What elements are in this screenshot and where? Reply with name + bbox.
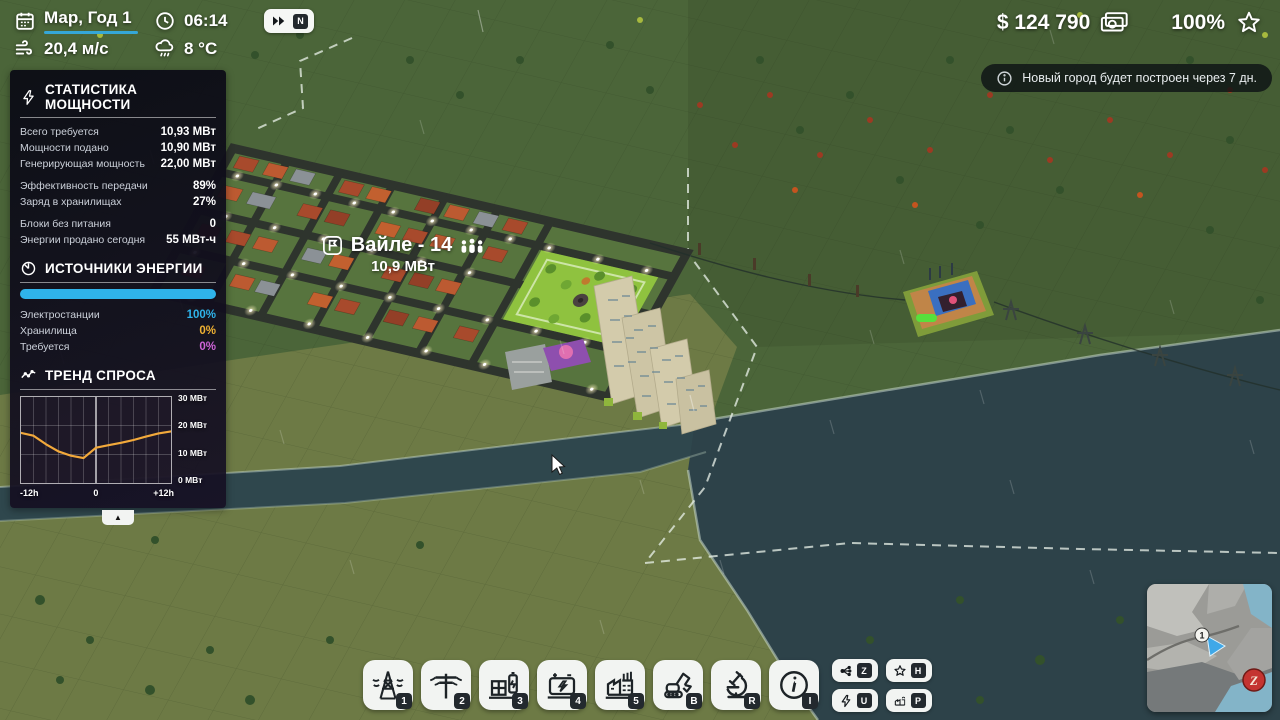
population-icon bbox=[459, 237, 485, 255]
demand-trend-chart: 30 МВт 20 МВт 10 МВт 0 МВт bbox=[20, 396, 216, 485]
hotkey-badge: 5 bbox=[628, 693, 644, 709]
hotkey-badge: B bbox=[686, 693, 702, 709]
lightning-icon bbox=[20, 89, 37, 106]
tool-research[interactable]: R bbox=[711, 660, 761, 710]
city-marker-number: 1 bbox=[1199, 631, 1204, 641]
tool-battery-storage[interactable]: 4 bbox=[537, 660, 587, 710]
y-axis-labels: 30 МВт 20 МВт 10 МВт 0 МВт bbox=[172, 393, 207, 485]
hotkey-badge: Z bbox=[857, 663, 872, 678]
game-viewport: Мар, Год 1 06:14 N 20,4 м/с bbox=[0, 0, 1280, 720]
overlay-hotkeys: Z H U P bbox=[832, 659, 932, 712]
hotkey-badge: R bbox=[744, 693, 760, 709]
overlay-production-button[interactable]: P bbox=[886, 689, 932, 712]
tool-demolish[interactable]: B bbox=[653, 660, 703, 710]
game-date: Мар, Год 1 bbox=[44, 8, 138, 28]
money-amount: $ 124 790 bbox=[997, 11, 1090, 35]
energy-sources-header: ИСТОЧНИКИ ЭНЕРГИИ bbox=[20, 256, 216, 282]
energy-sources-bar bbox=[20, 289, 216, 299]
wind-icon bbox=[14, 38, 36, 60]
city-name: Вайле - 14 bbox=[351, 234, 452, 257]
hotkey-badge: 1 bbox=[396, 693, 412, 709]
divider bbox=[20, 389, 216, 390]
tool-transmission-tower[interactable]: 1 bbox=[363, 660, 413, 710]
source-row: Электростанции 100% bbox=[20, 307, 216, 323]
hotkey-badge: U bbox=[857, 693, 872, 708]
temperature: 8 °C bbox=[184, 39, 217, 59]
stat-row: Генерирующая мощность22,00 МВт bbox=[20, 156, 216, 172]
minimap-terrain: 1 Z bbox=[1147, 584, 1272, 712]
overlay-approval-button[interactable]: H bbox=[886, 659, 932, 682]
divider bbox=[20, 117, 216, 118]
date-underline bbox=[44, 31, 138, 34]
tool-substation[interactable]: 3 bbox=[479, 660, 529, 710]
speed-mode-badge: N bbox=[293, 14, 308, 29]
tool-info[interactable]: I bbox=[769, 660, 819, 710]
overlay-power-button[interactable]: U bbox=[832, 689, 878, 712]
build-toolbar: 1 2 3 4 bbox=[363, 660, 819, 710]
clock-icon bbox=[154, 10, 176, 32]
hotkey-badge: H bbox=[911, 663, 926, 678]
stat-row: Мощности подано10,90 МВт bbox=[20, 140, 216, 156]
stat-row: Эффективность передачи89% bbox=[20, 178, 216, 194]
city-label[interactable]: Вайле - 14 10,9 МВт bbox=[318, 234, 488, 275]
logo-letter: Z bbox=[1249, 673, 1258, 688]
source-row: Требуется 0% bbox=[20, 339, 216, 355]
power-stats-header: СТАТИСТИКА МОЩНОСТИ bbox=[20, 78, 216, 117]
divider bbox=[20, 282, 216, 283]
hotkey-badge: 4 bbox=[570, 693, 586, 709]
rain-cloud-icon bbox=[154, 38, 176, 60]
power-statistics-panel: СТАТИСТИКА МОЩНОСТИ Всего требуется10,93… bbox=[10, 70, 226, 508]
stat-row: Блоки без питания0 bbox=[20, 216, 216, 232]
trend-plot-area bbox=[20, 396, 172, 484]
demand-trend-header: ТРЕНД СПРОСА bbox=[20, 363, 216, 389]
game-time: 06:14 bbox=[184, 11, 227, 31]
info-icon bbox=[996, 70, 1013, 87]
stat-row: Заряд в хранилищах27% bbox=[20, 194, 216, 210]
gauge-icon bbox=[20, 260, 37, 277]
game-speed-control[interactable]: N bbox=[264, 9, 314, 33]
tool-power-plant[interactable]: 5 bbox=[595, 660, 645, 710]
top-right-hud: $ 124 790 100% bbox=[997, 10, 1264, 36]
notification-text: Новый город будет построен через 7 дн. bbox=[1022, 71, 1257, 85]
city-power-demand: 10,9 МВт bbox=[318, 258, 488, 275]
network-icon bbox=[839, 664, 853, 678]
city-flag-icon bbox=[321, 234, 344, 257]
calendar-icon bbox=[14, 10, 36, 32]
minimap[interactable]: 1 Z bbox=[1147, 584, 1272, 712]
star-icon bbox=[1234, 10, 1264, 36]
wind-speed: 20,4 м/с bbox=[44, 39, 109, 59]
hotkey-badge: I bbox=[802, 693, 818, 709]
x-axis-labels: -12h 0 +12h bbox=[20, 488, 174, 498]
overlay-grid-button[interactable]: Z bbox=[832, 659, 878, 682]
trend-line-icon bbox=[20, 367, 37, 384]
banknote-icon bbox=[1099, 10, 1129, 36]
star-icon bbox=[893, 664, 907, 678]
top-left-hud: Мар, Год 1 06:14 N 20,4 м/с bbox=[14, 8, 314, 60]
lightning-icon bbox=[839, 694, 853, 708]
source-row: Хранилища 0% bbox=[20, 323, 216, 339]
hotkey-badge: 2 bbox=[454, 693, 470, 709]
hotkey-badge: 3 bbox=[512, 693, 528, 709]
panel-collapse-button[interactable]: ▲ bbox=[102, 510, 134, 525]
hotkey-badge: P bbox=[911, 693, 926, 708]
tool-power-pole[interactable]: 2 bbox=[421, 660, 471, 710]
notification-toast[interactable]: Новый город будет построен через 7 дн. bbox=[981, 64, 1272, 92]
stat-row: Всего требуется10,93 МВт bbox=[20, 124, 216, 140]
fast-forward-icon bbox=[270, 12, 288, 30]
approval-percent: 100% bbox=[1171, 11, 1225, 35]
factory-icon bbox=[893, 694, 907, 708]
stat-row: Энергии продано сегодня55 МВт-ч bbox=[20, 232, 216, 248]
